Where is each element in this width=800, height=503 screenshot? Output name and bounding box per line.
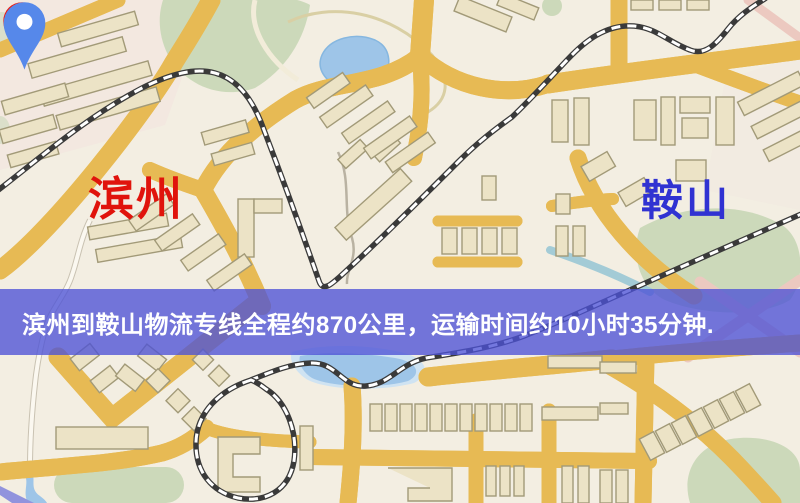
route-info-text: 滨州到鞍山物流专线全程约870公里，运输时间约10小时35分钟. xyxy=(0,305,714,340)
destination-city-label: 鞍山 xyxy=(641,180,731,222)
map-canvas: 滨州 鞍山 滨州到鞍山物流专线全程约870公里，运输时间约10小时35分钟. xyxy=(0,0,800,503)
origin-city-label: 滨州 xyxy=(88,176,184,222)
route-info-banner: 滨州到鞍山物流专线全程约870公里，运输时间约10小时35分钟. xyxy=(0,289,800,355)
map-background xyxy=(0,0,800,503)
destination-pin-icon xyxy=(0,0,49,73)
